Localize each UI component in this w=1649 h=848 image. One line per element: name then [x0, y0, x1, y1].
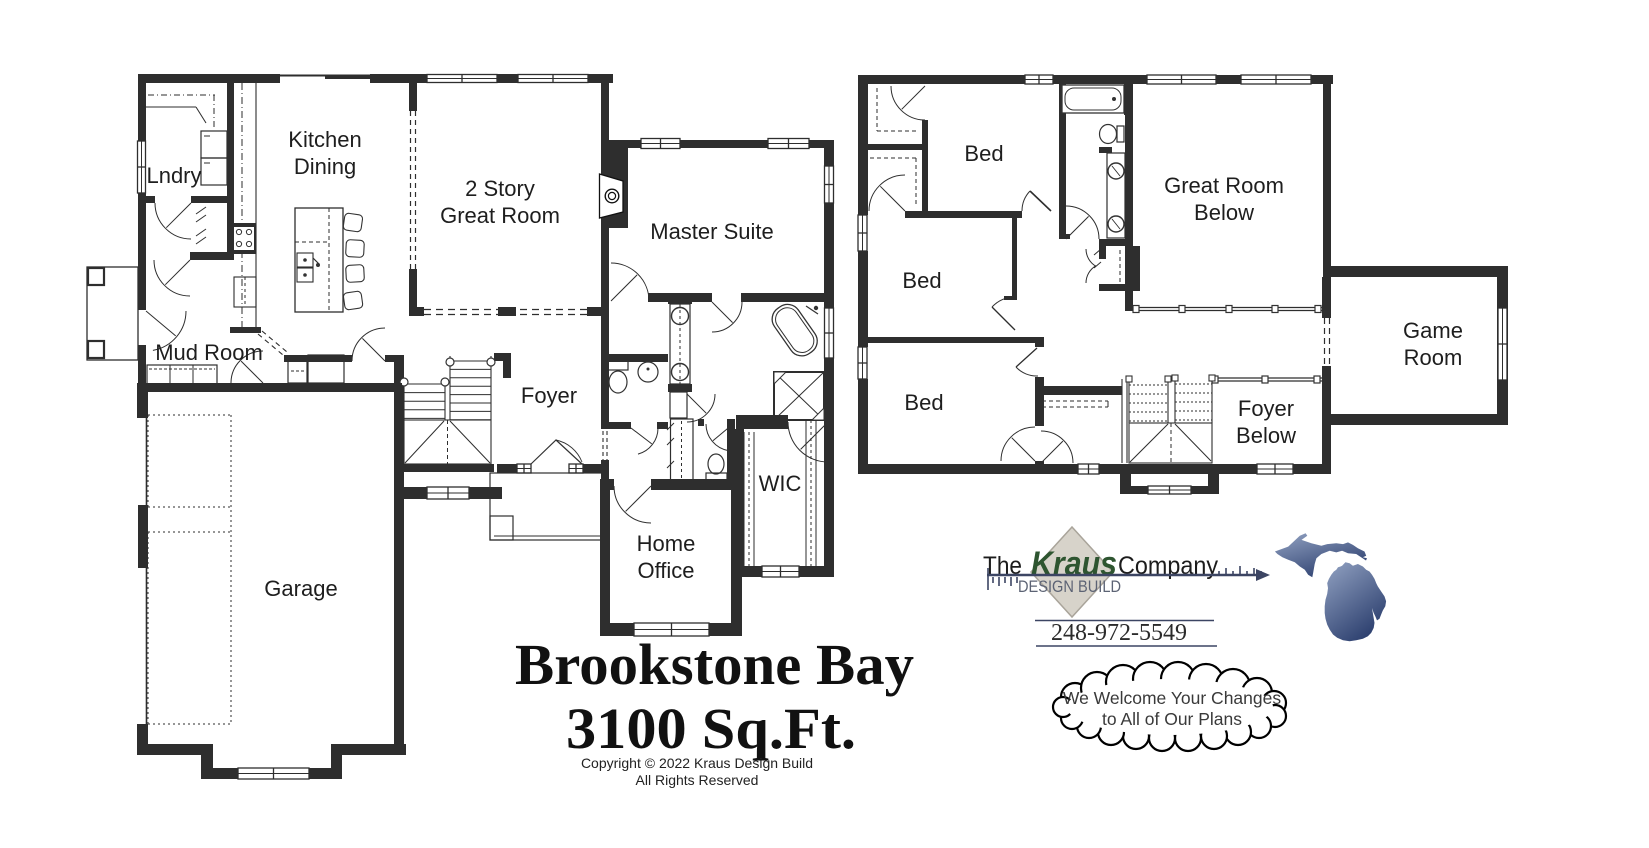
svg-text:Great Room: Great Room	[1164, 173, 1284, 198]
svg-text:Below: Below	[1194, 200, 1254, 225]
svg-text:Room: Room	[1404, 345, 1463, 370]
svg-text:3100 Sq.Ft.: 3100 Sq.Ft.	[566, 696, 856, 761]
svg-text:WIC: WIC	[759, 471, 802, 496]
svg-text:All Rights Reserved: All Rights Reserved	[636, 772, 759, 788]
svg-text:Brookstone Bay: Brookstone Bay	[515, 632, 914, 697]
svg-text:Game: Game	[1403, 318, 1463, 343]
svg-text:Bed: Bed	[902, 268, 941, 293]
svg-text:Bed: Bed	[964, 141, 1003, 166]
svg-text:DESIGN BUILD: DESIGN BUILD	[1018, 577, 1121, 596]
svg-text:Foyer: Foyer	[521, 383, 577, 408]
svg-text:We Welcome Your Changes: We Welcome Your Changes	[1063, 688, 1281, 708]
svg-text:Lndry: Lndry	[146, 163, 201, 188]
svg-text:Home: Home	[637, 531, 696, 556]
svg-text:Below: Below	[1236, 423, 1296, 448]
svg-text:Office: Office	[637, 558, 694, 583]
svg-text:Bed: Bed	[904, 390, 943, 415]
svg-text:2 Story: 2 Story	[465, 176, 535, 201]
svg-text:248-972-5549: 248-972-5549	[1051, 620, 1187, 646]
svg-text:Master Suite: Master Suite	[650, 219, 774, 244]
svg-text:Great Room: Great Room	[440, 203, 560, 228]
svg-text:Mud Room: Mud Room	[155, 340, 263, 365]
svg-text:to All of Our Plans: to All of Our Plans	[1102, 709, 1242, 729]
svg-text:Copyright © 2022 Kraus Design: Copyright © 2022 Kraus Design Build	[581, 755, 813, 771]
svg-text:Garage: Garage	[264, 576, 337, 601]
svg-text:Kitchen: Kitchen	[288, 127, 361, 152]
svg-text:Dining: Dining	[294, 154, 356, 179]
svg-text:Foyer: Foyer	[1238, 396, 1294, 421]
